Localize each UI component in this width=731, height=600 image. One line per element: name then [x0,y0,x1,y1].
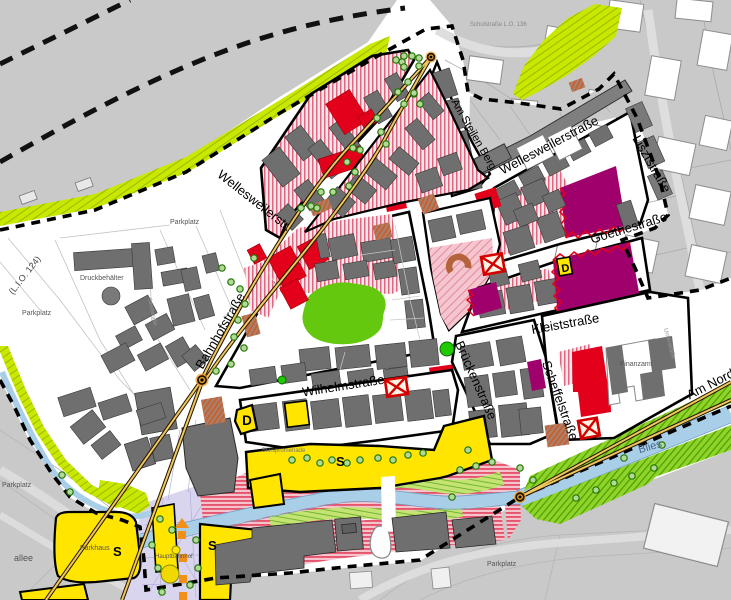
svg-text:Parkplatz: Parkplatz [2,482,32,489]
svg-text:D: D [242,413,252,428]
svg-text:Parkplatz: Parkplatz [22,310,52,317]
svg-text:Druckbehälter: Druckbehälter [80,275,124,282]
svg-text:Schulstraße L.O. 136: Schulstraße L.O. 136 [470,22,527,28]
svg-text:allee: allee [14,553,33,563]
svg-text:Parkplatz: Parkplatz [487,561,517,568]
svg-text:Parkhaus: Parkhaus [80,545,110,552]
svg-text:S: S [113,544,122,559]
svg-text:S: S [208,538,217,553]
svg-text:Bliespromenade: Bliespromenade [262,448,306,454]
svg-text:Hauptbahnhof: Hauptbahnhof [155,554,193,560]
svg-text:Finanzamt: Finanzamt [620,361,653,368]
svg-text:Parkplatz: Parkplatz [170,219,200,226]
svg-text:S: S [336,454,345,469]
